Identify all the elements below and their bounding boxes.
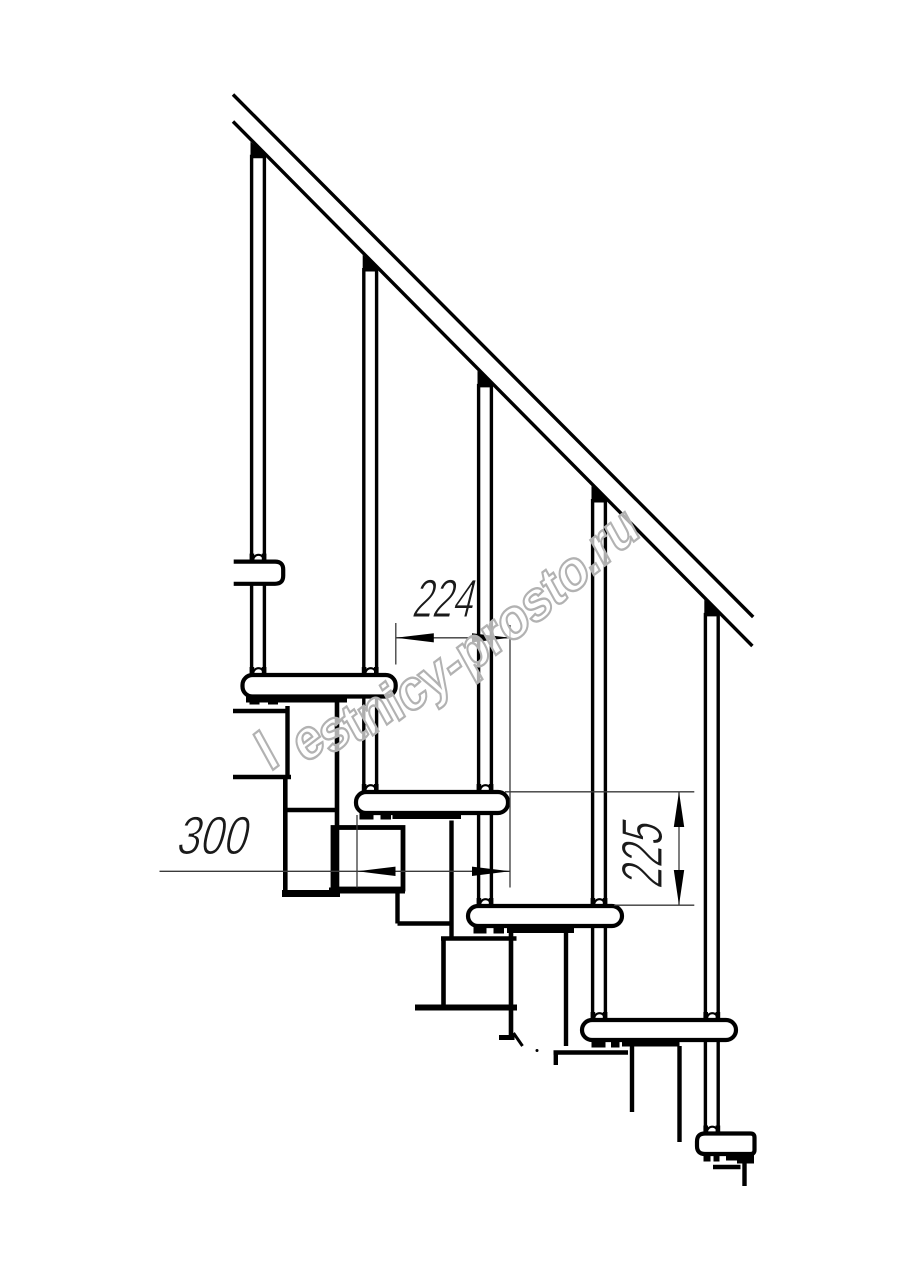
svg-text:300: 300 xyxy=(172,806,257,866)
